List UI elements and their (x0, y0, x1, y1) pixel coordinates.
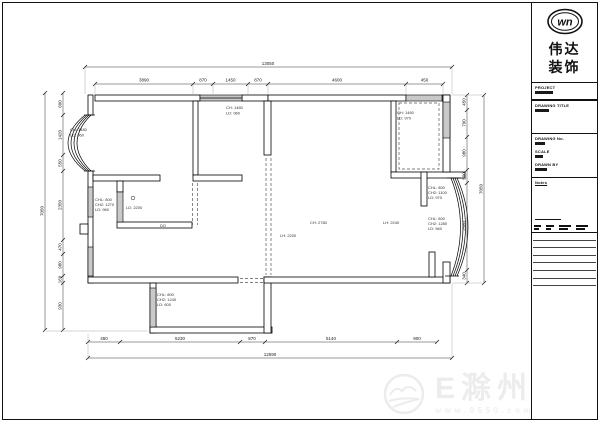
svg-text:LD: 960: LD: 960 (95, 207, 110, 212)
svg-text:2580: 2580 (462, 220, 467, 231)
dim-right-total: 7050 (479, 183, 484, 194)
svg-text:LD: 560: LD: 560 (428, 226, 443, 231)
svg-text:5140: 5140 (326, 336, 337, 341)
svg-text:LD: 2200: LD: 2200 (126, 205, 143, 210)
dim-left-total: 7050 (40, 205, 45, 216)
svg-text:450: 450 (100, 336, 108, 341)
drawing-title-value-smudge (535, 109, 549, 112)
revision-row (533, 279, 596, 287)
revision-row (533, 233, 596, 241)
svg-text:930: 930 (58, 302, 63, 310)
svg-text:900: 900 (413, 336, 421, 341)
svg-text:LD: 960: LD: 960 (70, 133, 85, 138)
svg-text:wn: wn (557, 17, 573, 29)
company-name-line1: 伟达 (532, 40, 597, 58)
svg-text:160: 160 (58, 275, 63, 283)
company-logo-icon: wn (546, 8, 584, 35)
drawing-no-label: DRAWING No. (535, 136, 594, 141)
drawn-by-value-smudge (535, 168, 547, 171)
walls (80, 95, 465, 333)
svg-text:3890: 3890 (139, 78, 150, 83)
left-bay-window (68, 115, 95, 171)
revision-header-stub (576, 225, 588, 230)
svg-text:500: 500 (462, 172, 467, 180)
svg-text:LH: 2200: LH: 2200 (280, 233, 297, 238)
svg-text:870: 870 (254, 78, 262, 83)
revision-row (533, 256, 596, 264)
revision-header-stub (534, 225, 541, 230)
svg-text:5230: 5230 (175, 336, 186, 341)
living-height-label: CH: 2780 (310, 220, 328, 225)
svg-text:1450: 1450 (225, 78, 236, 83)
drawing-title-section: DRAWING TITLE (532, 101, 597, 134)
svg-text:2350: 2350 (58, 199, 63, 210)
svg-text:LD: 600: LD: 600 (157, 302, 172, 307)
svg-text:4600: 4600 (332, 78, 343, 83)
svg-text:450: 450 (462, 98, 467, 106)
floor-plan: 13050 3890 870 1450 870 4600 450 450 523… (0, 0, 600, 422)
drawing-sheet: E滁州 www.0550.com (0, 0, 600, 422)
svg-text:CH: 1460: CH: 1460 (397, 110, 415, 115)
drawn-by-label: DRAWN BY (535, 162, 594, 167)
svg-text:LD: 960: LD: 960 (226, 111, 241, 116)
svg-text:CH: 1480: CH: 1480 (70, 127, 88, 132)
svg-text:340: 340 (462, 272, 467, 280)
revision-row (533, 271, 596, 279)
revision-row (533, 248, 596, 256)
revision-table-rows (532, 233, 597, 286)
revision-header-stub (546, 225, 554, 230)
scale-label: SCALE (535, 149, 594, 154)
project-label: PROJECT (535, 85, 594, 90)
company-name-line2: 装饰 (532, 58, 597, 76)
svg-text:LH: 2240: LH: 2240 (383, 220, 400, 225)
svg-text:980: 980 (58, 261, 63, 269)
logo-section: wn 伟达 装饰 (532, 3, 597, 83)
drawing-no-value-smudge (535, 142, 545, 145)
svg-text:450: 450 (421, 78, 429, 83)
svg-text:870: 870 (248, 336, 256, 341)
project-value-smudge (535, 91, 553, 94)
svg-text:470: 470 (58, 243, 63, 251)
drawing-no-section: DRAWING No. SCALE DRAWN BY (532, 134, 597, 178)
revision-header-stub (559, 225, 571, 230)
dim-top-total: 13050 (262, 61, 275, 66)
notes-rule (535, 219, 561, 220)
project-section: PROJECT (532, 83, 597, 101)
scale-value-smudge (535, 155, 543, 158)
svg-text:1420: 1420 (58, 129, 63, 140)
svg-text:550: 550 (58, 159, 63, 167)
revision-row (533, 263, 596, 271)
circle-symbol (131, 196, 135, 200)
svg-text:CH: 1460: CH: 1460 (226, 105, 244, 110)
door-tag: DO (160, 223, 166, 228)
svg-text:980: 980 (462, 149, 467, 157)
svg-text:LD: 970: LD: 970 (397, 116, 412, 121)
revision-row (533, 241, 596, 249)
title-block: wn 伟达 装饰 PROJECT DRAWING TITLE DRAWING N… (531, 3, 597, 419)
svg-text:870: 870 (199, 78, 207, 83)
svg-text:790: 790 (462, 119, 467, 127)
svg-text:600: 600 (58, 100, 63, 108)
notes-label: Notes (535, 180, 594, 185)
drawing-title-label: DRAWING TITLE (535, 103, 594, 108)
svg-text:LD: 970: LD: 970 (428, 195, 443, 200)
notes-section: Notes (532, 178, 597, 224)
dim-bottom-total: 12590 (264, 352, 277, 357)
revision-table-header (532, 224, 597, 233)
